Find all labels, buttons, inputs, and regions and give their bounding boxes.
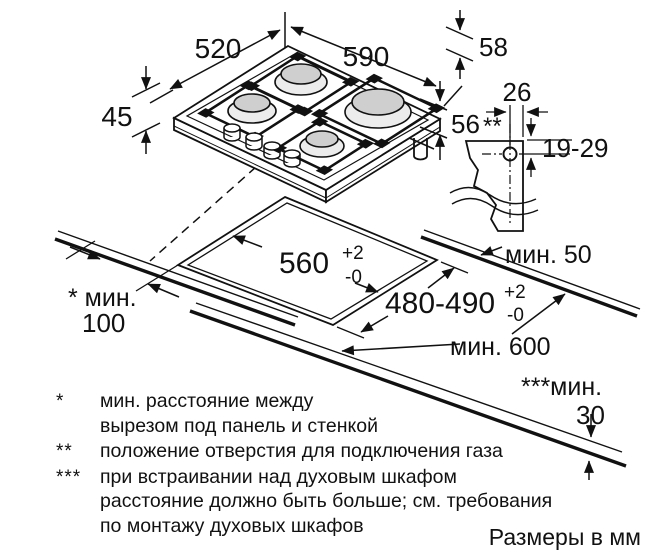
footnote-line: при встраивании над духовым шкафом [100, 465, 552, 490]
footnote-marker: * [56, 389, 100, 413]
dim-19-29: 19-29 [519, 118, 609, 177]
footnote-line: расстояние должно быть больше; см. требо… [100, 489, 552, 514]
dim-590-label: 590 [343, 41, 390, 72]
footnote-row: ** положение отверстия для подключения г… [56, 439, 631, 464]
dim-480-490-label: 480-490 [385, 287, 495, 320]
dim-56-label: 56 [451, 109, 480, 139]
dim-480-490: 480-490 +2 -0 [361, 268, 526, 332]
footnotes: * мин. расстояние между вырезом под пане… [56, 389, 631, 539]
footnote-row: * мин. расстояние между вырезом под пане… [56, 389, 631, 438]
projection-dashed-line [150, 167, 256, 261]
footnote-marker: *** [56, 465, 100, 489]
dim-560-tol-plus: +2 [342, 243, 364, 264]
dim-19-29-label: 19-29 [542, 133, 609, 163]
footnote-line: положение отверстия для подключения газа [100, 439, 503, 464]
min-50-label: мин. 50 [505, 241, 592, 269]
dim-45: 45 [101, 66, 160, 154]
min-100: * мин. 100 [68, 247, 179, 338]
dim-560-tol-minus: -0 [345, 267, 362, 288]
dim-58-label: 58 [479, 32, 508, 62]
gas-marker-label: ** [483, 113, 502, 140]
dim-520-label: 520 [195, 33, 242, 64]
dim-26: 26 ** [483, 77, 548, 145]
installation-diagram-page: 520 590 58 45 56 26 ** [0, 0, 657, 557]
dim-560: 560 +2 -0 [233, 236, 378, 292]
dim-560-label: 560 [279, 247, 329, 280]
min-100-label-line2: 100 [82, 308, 125, 338]
dim-480-490-tol-minus: -0 [507, 305, 524, 326]
gas-connection-detail [450, 124, 538, 231]
footnote-marker: ** [56, 439, 100, 463]
footnote-line: по монтажу духовых шкафов [100, 514, 552, 539]
footnote-line: вырезом под панель и стенкой [100, 414, 378, 439]
hob-isometric [174, 46, 442, 202]
min-600-label: мин. 600 [450, 333, 551, 361]
footnote-line: мин. расстояние между [100, 389, 378, 414]
dim-58: 58 [446, 10, 508, 79]
dim-26-label: 26 [503, 77, 532, 107]
dim-480-490-tol-plus: +2 [504, 282, 526, 303]
dim-45-label: 45 [101, 101, 132, 132]
units-note: Размеры в мм [489, 524, 641, 551]
